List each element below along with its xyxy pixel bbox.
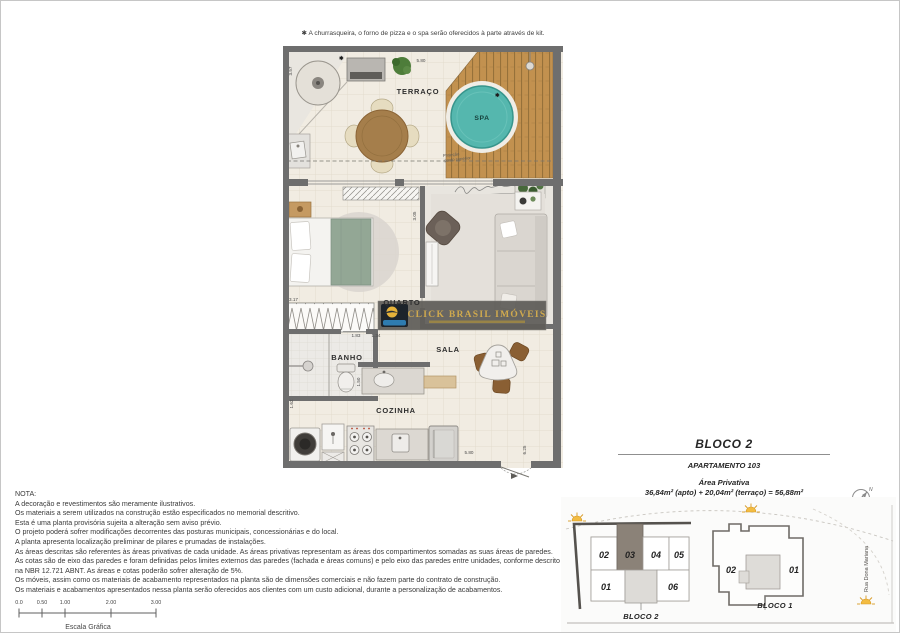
scale-bar-rule — [19, 609, 156, 618]
wardrobe — [288, 303, 374, 332]
bed — [288, 218, 373, 286]
scale-tick-1: 0.50 — [37, 600, 48, 606]
laundry-sink — [288, 134, 310, 168]
note-line: O projeto poderá sofrer modificações dec… — [15, 528, 560, 538]
label-quarto: QUARTO — [383, 298, 420, 307]
label-terraco: TERRAÇO — [397, 87, 440, 96]
unit-b1-01-label: 01 — [789, 565, 799, 575]
scale-tick-2: 1.00 — [60, 600, 71, 606]
street-label: Rua Dona Mariana — [864, 545, 870, 592]
scale-bar: 0.0 0.50 1.00 2.00 3.00 Escala Gráfica — [13, 596, 183, 632]
bloco2-core — [625, 570, 657, 603]
notes-title: NOTA: — [15, 490, 560, 500]
scale-tick-4: 3.00 — [151, 600, 162, 606]
note-line: Os móveis, assim como os materiais de ac… — [15, 576, 560, 586]
pizza-oven — [296, 61, 340, 105]
scale-bar-label: Escala Gráfica — [65, 624, 111, 631]
bloco2-label: BLOCO 2 — [623, 612, 659, 621]
notes-section: NOTA: A decoração e revestimentos são me… — [15, 490, 560, 596]
dim-quarto-left: 3.17 — [289, 297, 298, 302]
compass-north-label: N — [869, 487, 873, 493]
kit-star-grill: ✱ — [339, 55, 344, 62]
stove — [347, 426, 374, 463]
unit-b2-04-label: 04 — [651, 550, 661, 560]
kit-note: ✱ A churrasqueira, o forno de pizza e o … — [273, 29, 573, 37]
terrace-closet — [343, 187, 419, 200]
dim-cozinha-left: 1.62 — [289, 399, 294, 408]
scale-tick-3: 2.00 — [106, 600, 117, 606]
agency-logo-icon — [381, 304, 408, 327]
unit-b1-02-label: 02 — [726, 565, 736, 575]
grill-counter — [347, 58, 385, 81]
note-line: As cotas são de eixo das paredes e foram… — [15, 557, 560, 567]
kitchen-bar — [424, 376, 456, 388]
unit-b2-02-label: 02 — [599, 550, 609, 560]
dim-banho-right: 1.50 — [356, 377, 361, 386]
floor-plan: Projeção pavto superior — [283, 46, 563, 481]
toilet — [337, 364, 355, 392]
unit-b2-01-label: 01 — [601, 582, 611, 592]
label-sala: SALA — [436, 345, 460, 354]
label-cozinha: COZINHA — [376, 406, 416, 415]
site-plan: 02 03 04 05 01 06 BLOCO 2 02 01 BLOCO 1 … — [561, 497, 896, 633]
nightstand — [289, 202, 311, 217]
unit-b2-03-label: 03 — [625, 550, 635, 560]
dim-banho-top-right: 1.34 — [372, 333, 381, 338]
dim-terrace-left: 3.57 — [288, 66, 293, 75]
floorplan-sheet: ✱ A churrasqueira, o forno de pizza e o … — [0, 0, 900, 633]
note-line: A decoração e revestimentos são merament… — [15, 500, 560, 510]
side-table — [515, 192, 541, 210]
fridge — [429, 426, 458, 462]
title-block: BLOCO 2 APARTAMENTO 103 Área Privativa 3… — [618, 437, 830, 497]
title-bloco: BLOCO 2 — [618, 437, 830, 451]
kit-star-spa: ✱ — [495, 92, 500, 99]
tv-console — [426, 242, 438, 286]
scale-tick-0: 0.0 — [15, 600, 23, 606]
bloco1-label: BLOCO 1 — [757, 601, 792, 610]
bloco1-core — [746, 555, 780, 589]
counter-sink — [376, 429, 428, 460]
title-area-privativa: Área Privativa — [618, 478, 830, 487]
dim-cozinha-bottom: 5.80 — [465, 450, 474, 455]
note-line: Os materiais e acabamentos apresentados … — [15, 586, 560, 596]
dim-right-edge: 6.25 — [522, 445, 527, 454]
title-apartamento: APARTAMENTO 103 — [618, 461, 830, 470]
label-banho: BANHO — [331, 353, 363, 362]
bed-runner — [331, 219, 371, 285]
agency-watermark-text: CLICK BRASIL IMÓVEIS — [408, 308, 547, 320]
unit-b2-05-label: 05 — [674, 550, 685, 560]
entry-door — [501, 467, 531, 479]
note-line: A planta apresenta localização prelimina… — [15, 538, 560, 548]
title-area-value: 36,84m² (apto) + 20,04m² (terraço) = 56,… — [618, 488, 830, 497]
note-line: Os materiais a serem utilizados na const… — [15, 509, 560, 519]
unit-b2-03-highlighted — [617, 524, 643, 571]
note-line: As áreas descritas são referentes às áre… — [15, 548, 560, 558]
unit-b2-06-label: 06 — [668, 582, 679, 592]
note-line: Esta é uma planta provisória sujeita a a… — [15, 519, 560, 529]
dim-quarto-right: 3.05 — [412, 211, 417, 220]
dim-banho-top-left: 1.83 — [352, 333, 361, 338]
title-divider — [618, 454, 830, 455]
note-line: na NBR 12.721 ABNT. As áreas e cotas pod… — [15, 567, 560, 577]
dim-terrace-top: 5.80 — [417, 58, 426, 63]
kitchen-sink-cabinet — [322, 424, 344, 463]
label-spa: SPA — [474, 115, 489, 122]
washing-machine — [290, 428, 320, 461]
